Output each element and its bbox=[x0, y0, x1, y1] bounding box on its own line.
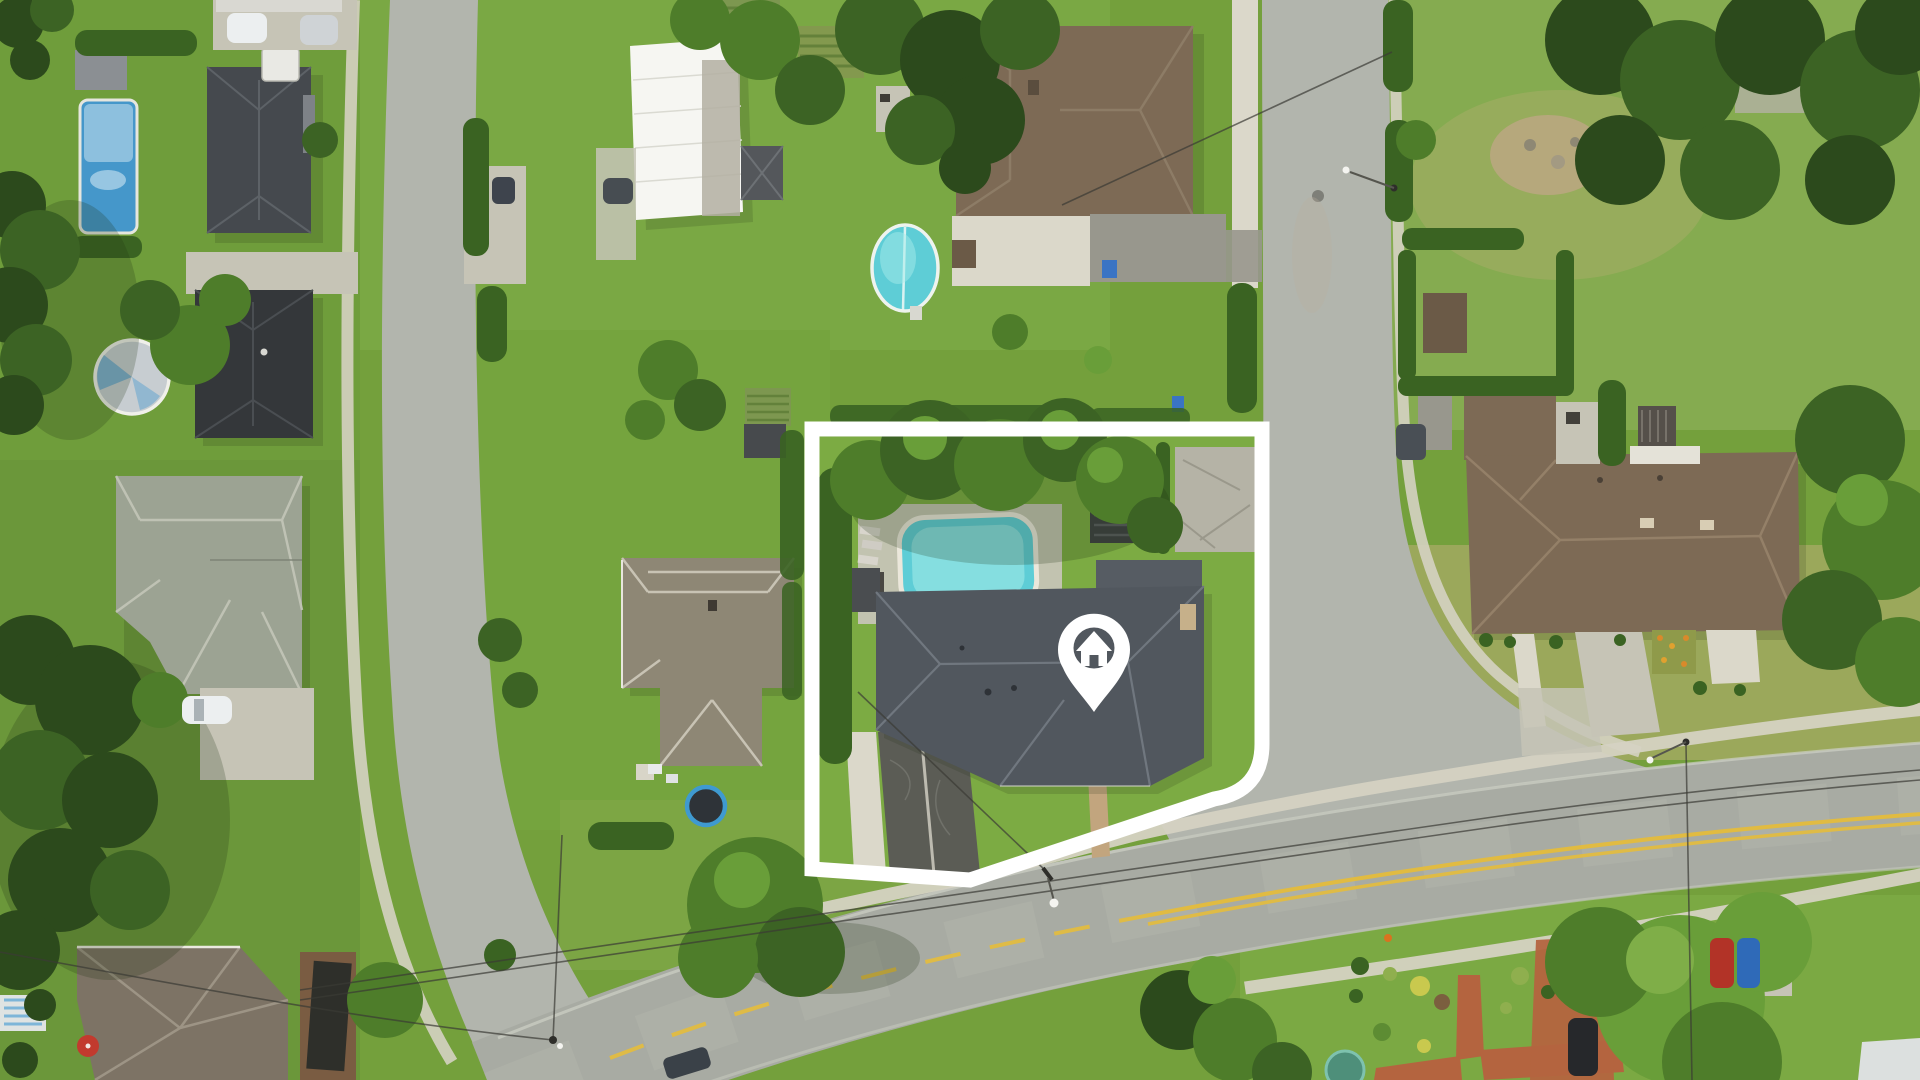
camper-trailer bbox=[262, 48, 299, 81]
chimney bbox=[1180, 604, 1196, 630]
concrete-pad bbox=[1175, 447, 1256, 552]
car-silver-top bbox=[300, 15, 338, 45]
deck bbox=[702, 60, 740, 216]
roof-corner-bottom-right bbox=[1858, 1038, 1920, 1080]
garden-ornament bbox=[1384, 934, 1392, 942]
small-shed bbox=[852, 568, 880, 612]
pool-ladder bbox=[910, 306, 922, 320]
garden-pond bbox=[1326, 1051, 1364, 1080]
trampoline bbox=[687, 787, 725, 825]
aerial-photo bbox=[0, 0, 1920, 1080]
car-black-suv bbox=[1568, 1018, 1598, 1076]
aerial-photo-canvas bbox=[0, 0, 1920, 1080]
garden-shed bbox=[952, 240, 976, 268]
recycling-bin bbox=[1102, 260, 1117, 278]
house-top-left bbox=[207, 67, 323, 243]
car-white-driveway bbox=[182, 696, 232, 724]
car-right-street bbox=[1396, 424, 1426, 460]
flower-bed bbox=[1652, 630, 1696, 674]
car-white-top bbox=[227, 13, 267, 43]
building-edge bbox=[216, 0, 342, 12]
dark-tarp bbox=[306, 961, 351, 1071]
home-icon-door bbox=[1090, 655, 1099, 666]
gazebo-dark bbox=[741, 146, 783, 200]
chimney bbox=[1028, 80, 1039, 95]
car-suv bbox=[603, 178, 633, 204]
street-lamp bbox=[1050, 899, 1059, 908]
car-red bbox=[1710, 938, 1734, 988]
shed-right bbox=[1423, 293, 1467, 353]
car-blue bbox=[1737, 938, 1760, 988]
backyard-gazebo bbox=[744, 424, 786, 458]
car-street-left bbox=[492, 177, 515, 204]
